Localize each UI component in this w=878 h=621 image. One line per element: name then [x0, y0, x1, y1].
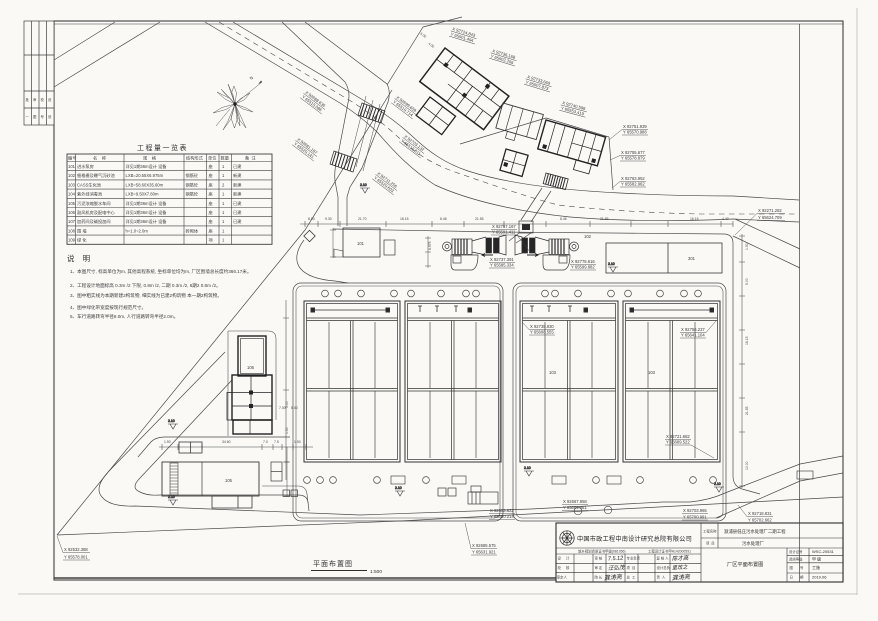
- svg-text:单位: 单位: [208, 155, 216, 162]
- svg-text:1.50: 1.50: [745, 243, 749, 250]
- svg-text:103: 103: [68, 182, 76, 187]
- svg-text:甲 级: 甲 级: [812, 556, 821, 562]
- svg-text:审定人: 审定人: [557, 575, 568, 580]
- svg-text:103: 103: [549, 370, 557, 375]
- svg-text:城乡规划资质证书甲级(081056): 城乡规划资质证书甲级(081056): [578, 549, 625, 554]
- svg-text:2019.06: 2019.06: [812, 575, 827, 580]
- svg-text:新建: 新建: [233, 172, 242, 179]
- svg-text:座: 座: [209, 163, 213, 170]
- svg-text:Y 65664.861: Y 65664.861: [563, 505, 587, 510]
- svg-text:审 定: 审 定: [595, 565, 603, 570]
- svg-text:21.55: 21.55: [745, 406, 749, 415]
- svg-text:Y 65585.334: Y 65585.334: [490, 263, 514, 268]
- svg-text:围 墙: 围 墙: [77, 227, 87, 234]
- svg-text:里改之: 里改之: [672, 564, 689, 572]
- svg-text:Y 65689.522: Y 65689.522: [666, 440, 690, 445]
- svg-text:3、图中粗实线为本期新建2构筑物, 细实线为已建2构筑物 本: 3、图中粗实线为本期新建2构筑物, 细实线为已建2构筑物 本一期2构筑物。: [70, 292, 222, 299]
- svg-text:座: 座: [209, 227, 213, 234]
- svg-text:1.50: 1.50: [294, 440, 301, 444]
- svg-text:108: 108: [68, 228, 76, 233]
- svg-text:Y 65591.411: Y 65591.411: [492, 230, 516, 235]
- svg-text:Y 65599.882: Y 65599.882: [571, 265, 595, 270]
- svg-text:7.5: 7.5: [274, 440, 279, 444]
- svg-text:编号: 编号: [68, 155, 76, 162]
- svg-text:X 92532.388: X 92532.388: [64, 547, 88, 552]
- svg-text:新建: 新建: [233, 191, 242, 198]
- svg-text:已建: 已建: [233, 218, 242, 225]
- svg-text:平面布置图: 平面布置图: [313, 559, 353, 568]
- svg-text:座: 座: [209, 209, 213, 216]
- svg-text:座: 座: [209, 181, 213, 188]
- svg-text:Y 65578.879: Y 65578.879: [621, 156, 645, 161]
- svg-text:设计证号: 设计证号: [789, 549, 803, 554]
- svg-text:钢筋砼: 钢筋砼: [186, 191, 199, 198]
- svg-text:已建: 已建: [233, 200, 242, 207]
- svg-text:陈才高: 陈才高: [672, 555, 690, 563]
- svg-text:X 92721.682: X 92721.682: [666, 434, 690, 439]
- svg-text:复 核 人: 复 核 人: [657, 556, 670, 561]
- svg-text:加药间及碱投加间: 加药间及碱投加间: [77, 218, 111, 225]
- svg-text:Y 65582.962: Y 65582.962: [621, 182, 645, 187]
- svg-text:6.975: 6.975: [428, 241, 432, 250]
- svg-text:34.60: 34.60: [222, 440, 231, 444]
- svg-text:专业负责: 专业负责: [627, 556, 641, 561]
- svg-text:CASS生化池: CASS生化池: [77, 181, 102, 188]
- svg-text:溆浦县低庄污水处理厂二期工程: 溆浦县低庄污水处理厂二期工程: [724, 528, 786, 535]
- svg-text:1.50: 1.50: [164, 440, 171, 444]
- svg-text:备 注: 备 注: [245, 155, 257, 162]
- svg-text:LXB=58.60X35.60m: LXB=58.60X35.60m: [126, 182, 164, 187]
- svg-text:汪弘茂: 汪弘茂: [608, 564, 626, 572]
- svg-text:详见1期36m设计 设备: 详见1期36m设计 设备: [126, 209, 168, 216]
- svg-text:院 长: 院 长: [595, 575, 603, 580]
- svg-text:2.10: 2.10: [395, 486, 402, 490]
- svg-text:2.10: 2.10: [608, 262, 615, 266]
- svg-text:已建: 已建: [233, 163, 242, 170]
- svg-text:2.10: 2.10: [168, 495, 175, 499]
- svg-text:2.10: 2.10: [360, 183, 367, 187]
- svg-text:工程名称: 工程名称: [703, 529, 717, 534]
- svg-text:新建: 新建: [233, 181, 242, 188]
- svg-text:Y 65624.709: Y 65624.709: [758, 215, 782, 220]
- svg-text:21.55: 21.55: [475, 217, 484, 221]
- svg-text:101: 101: [68, 164, 76, 169]
- svg-text:X 92271.282: X 92271.282: [758, 208, 782, 213]
- svg-text:5.00: 5.00: [745, 278, 749, 285]
- svg-text:X 92735.930: X 92735.930: [530, 324, 554, 329]
- svg-text:2.10: 2.10: [168, 419, 175, 423]
- svg-text:21.70: 21.70: [358, 217, 367, 221]
- svg-text:结构形式: 结构形式: [186, 155, 204, 162]
- svg-text:工程设计证书甲A142000591: 工程设计证书甲A142000591: [648, 549, 691, 554]
- svg-text:X 92653.622: X 92653.622: [490, 508, 514, 513]
- svg-text:109: 109: [68, 238, 76, 243]
- svg-text:日: 日: [790, 576, 793, 580]
- svg-text:Y 65608.555: Y 65608.555: [530, 330, 554, 335]
- svg-text:座: 座: [209, 191, 213, 198]
- svg-text:Y 65641.104: Y 65641.104: [681, 333, 705, 338]
- svg-text:设计总负: 设计总负: [657, 565, 671, 570]
- svg-text:进水泵房: 进水泵房: [77, 163, 94, 170]
- svg-text:18.15: 18.15: [400, 217, 409, 221]
- svg-text:10.00: 10.00: [745, 461, 749, 470]
- svg-text:5、车行道路转弯半径8.0m, 人行道路转弯半径2.0m。: 5、车行道路转弯半径8.0m, 人行道路转弯半径2.0m。: [70, 313, 178, 320]
- svg-text:座: 座: [209, 172, 213, 179]
- svg-text:1.50: 1.50: [285, 427, 289, 434]
- svg-text:Y 65570.988: Y 65570.988: [623, 130, 647, 135]
- svg-text:X 92751.939: X 92751.939: [623, 124, 647, 129]
- svg-text:8.46: 8.46: [440, 217, 447, 221]
- svg-text:4、图中绿化带宽度按现行规范尺寸。: 4、图中绿化带宽度按现行规范尺寸。: [70, 304, 146, 311]
- svg-text:规 格: 规 格: [143, 155, 157, 162]
- svg-text:102: 102: [584, 234, 592, 239]
- svg-text:16.15: 16.15: [745, 336, 749, 345]
- svg-text:中国市政工程中南设计研究总院有限公司: 中国市政工程中南设计研究总院有限公司: [577, 535, 692, 543]
- svg-text:8.46: 8.46: [560, 217, 567, 221]
- svg-text:105: 105: [225, 478, 233, 483]
- svg-text:项 目: 项 目: [706, 542, 715, 546]
- svg-text:X 92718.831: X 92718.831: [748, 511, 772, 516]
- svg-text:1:500: 1:500: [370, 569, 382, 575]
- svg-text:污泥浓缩脱水车间: 污泥浓缩脱水车间: [77, 200, 111, 207]
- svg-text:102: 102: [68, 173, 76, 178]
- svg-text:Y 65702.662: Y 65702.662: [748, 518, 772, 523]
- svg-text:4.40: 4.40: [722, 217, 729, 221]
- svg-text:Y 65631.921: Y 65631.921: [472, 550, 496, 555]
- svg-text:砖砌体: 砖砌体: [186, 227, 199, 234]
- svg-text:X 92685.575: X 92685.575: [472, 543, 496, 548]
- svg-text:X 92703.965: X 92703.965: [683, 508, 707, 513]
- svg-text:16.15: 16.15: [690, 217, 699, 221]
- svg-text:1、本图尺寸, 标高单位为m, 其他高程系统, 坐标单位均为: 1、本图尺寸, 标高单位为m, 其他高程系统, 坐标单位均为m, 厂区围墙总长度…: [70, 268, 251, 275]
- svg-text:名 称: 名 称: [93, 155, 106, 162]
- svg-text:LXB=20.55X6.975m: LXB=20.55X6.975m: [126, 173, 164, 178]
- svg-text:X 92763.952: X 92763.952: [621, 176, 645, 181]
- svg-text:X 92757.167: X 92757.167: [492, 224, 516, 229]
- svg-text:详见1期36m设计 设备: 详见1期36m设计 设备: [126, 218, 168, 225]
- svg-text:资质等级: 资质等级: [789, 557, 803, 562]
- svg-text:h=1.0~2.0m: h=1.0~2.0m: [126, 228, 149, 233]
- svg-text:说 明: 说 明: [67, 253, 93, 263]
- svg-text:工程量一览表: 工程量一览表: [137, 143, 188, 152]
- svg-text:详见1期36m设计 设备: 详见1期36m设计 设备: [126, 163, 168, 170]
- svg-text:2.10: 2.10: [714, 482, 721, 486]
- svg-text:审 核: 审 核: [595, 556, 603, 561]
- svg-text:7.0: 7.0: [263, 440, 268, 444]
- svg-text:紫外线消毒池: 紫外线消毒池: [77, 191, 103, 198]
- svg-text:106: 106: [68, 210, 76, 215]
- svg-text:5.00: 5.00: [285, 401, 289, 408]
- svg-text:座: 座: [209, 218, 213, 225]
- svg-text:7.5.12: 7.5.12: [608, 555, 624, 562]
- svg-text:工施: 工施: [812, 564, 820, 570]
- svg-text:106: 106: [247, 365, 255, 370]
- svg-text:钢筋砼: 钢筋砼: [186, 181, 199, 188]
- svg-text:Y 65660.214: Y 65660.214: [490, 514, 514, 519]
- svg-text:数量: 数量: [221, 155, 229, 162]
- svg-text:103: 103: [648, 370, 656, 375]
- svg-text:X 92755.677: X 92755.677: [621, 150, 645, 155]
- svg-text:座: 座: [209, 200, 213, 207]
- svg-text:污水处理厂: 污水处理厂: [742, 540, 765, 547]
- svg-text:鼓风机房及配电中心: 鼓风机房及配电中心: [77, 209, 116, 216]
- svg-text:目: 目: [632, 566, 635, 570]
- svg-text:Y 65700.991: Y 65700.991: [683, 515, 707, 520]
- svg-text:2、工程设计地面标高 0.3m /2 下限, 0.8m: 2、工程设计地面标高 0.3m /2 下限, 0.8m /2, 二期 0.3m …: [70, 282, 221, 289]
- svg-text:LXB=9.50X7.80m: LXB=9.50X7.80m: [126, 192, 159, 197]
- svg-text:厂区平面布置图: 厂区平面布置图: [727, 560, 763, 568]
- svg-text:101: 101: [357, 241, 365, 246]
- svg-text:WSC-20531: WSC-20531: [812, 549, 835, 554]
- svg-text:X 92737.391: X 92737.391: [490, 257, 514, 262]
- svg-text:2.10: 2.10: [524, 466, 531, 470]
- svg-text:钢筋砼: 钢筋砼: [186, 172, 199, 179]
- svg-text:Y 65578.001: Y 65578.001: [64, 555, 88, 560]
- svg-text:详见1期36m设计 设备: 详见1期36m设计 设备: [126, 200, 168, 207]
- svg-text:X 92756.237: X 92756.237: [681, 327, 705, 332]
- svg-text:细格栅及曝气沉砂池: 细格栅及曝气沉砂池: [77, 172, 116, 179]
- svg-text:绿 化: 绿 化: [77, 237, 87, 244]
- svg-text:9.30: 9.30: [325, 217, 332, 221]
- svg-text:X 92667.958: X 92667.958: [563, 499, 587, 504]
- svg-text:104: 104: [68, 192, 76, 197]
- svg-text:5.00: 5.00: [291, 406, 298, 410]
- svg-text:105: 105: [68, 201, 76, 206]
- svg-text:已建: 已建: [233, 209, 242, 216]
- svg-text:21.55: 21.55: [600, 217, 609, 221]
- svg-text:301: 301: [688, 256, 696, 261]
- svg-text:8.00: 8.00: [308, 217, 315, 221]
- svg-text:107: 107: [68, 219, 76, 224]
- svg-text:X 92778.616: X 92778.616: [571, 259, 595, 264]
